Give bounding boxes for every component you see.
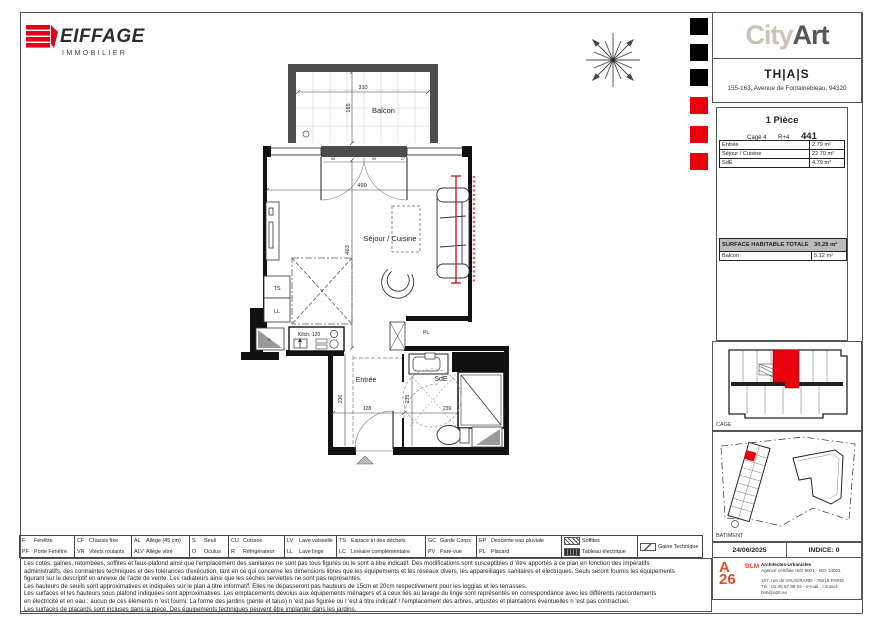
legend-table: FFenêtre PFPorte Fenêtre CFChassis fixe … — [20, 535, 712, 558]
dim-sejour-depth: 463 — [345, 245, 351, 255]
table-dashed — [392, 206, 420, 252]
dim-entree-depth: 236 — [338, 395, 344, 404]
tree-icon — [732, 521, 739, 528]
balcony-tiles — [296, 72, 430, 143]
disclaimer-text: Les cotes, gaines, retombées, soffites e… — [20, 558, 712, 612]
floor-plan: 310 165 Balcon 98 90 27 — [0, 0, 712, 535]
facade: 98 90 27 — [263, 146, 472, 162]
legend-col: CUCuisson RRéfrigérateur — [228, 535, 285, 558]
table-row: Entrée 2.79 m² — [719, 140, 845, 150]
waste-sorting-box: TS — [264, 276, 290, 298]
table-row: Séjour / Cuisine 22.70 m² — [719, 149, 845, 159]
stair-hatch — [759, 364, 773, 377]
sofa — [437, 188, 469, 278]
kitchen-label: Kitch. 120 — [298, 332, 320, 338]
cage-keyplan: CAGE — [712, 341, 862, 431]
architect-box: A 26 BLM Architectes-Urbanistes Agence c… — [712, 557, 862, 600]
room-label-entree: Entrée — [356, 377, 377, 384]
balcony-walls — [288, 64, 438, 143]
blm-label: BLM — [745, 563, 761, 599]
a26-logo: A 26 — [719, 562, 745, 599]
unit-info-box: 1 Pièce Cage 4 R+4 441 Entrée 2.79 m² Sé… — [716, 107, 848, 341]
balcony-door-bay — [321, 146, 407, 157]
dim-balcon-depth: 165 — [346, 103, 352, 112]
legend-col: LVLave vaisselle LLLave linge — [284, 535, 337, 558]
duct-mass — [452, 352, 504, 372]
room-label-balcon: Balcon — [372, 106, 395, 115]
legend-col: SSeuil OOculus — [189, 535, 229, 558]
legend-col: EPDescente eau pluviale PLPlacard — [476, 535, 562, 558]
dim-sde-depth: 235 — [405, 395, 411, 404]
svg-text:S: S — [268, 337, 271, 342]
project-logo: CityArt — [712, 12, 862, 59]
window-left — [267, 148, 321, 155]
closet-nook: PL — [390, 322, 429, 350]
plan-indice: INDICE: 0 — [786, 542, 862, 558]
dim-balcon-width: 310 — [358, 85, 367, 91]
legend-col: ALAllège (45 cm) ALVAllège vitré — [131, 535, 190, 558]
dim-bay-1: 98 — [331, 157, 335, 161]
soffit-zone — [292, 258, 352, 324]
project-logo-art: Art — [793, 20, 829, 51]
legend-col: GCGarde Corps PVPare-vue — [425, 535, 477, 558]
site-plan-drawing — [715, 434, 860, 537]
room-label-sde: SdE — [434, 376, 448, 383]
building-right — [793, 450, 843, 504]
dim-bay-2: 90 — [372, 157, 376, 161]
architect-line4: Tél : 01 45 67 89 02 - e-mail : contact-… — [761, 584, 857, 596]
room-areas-table: Entrée 2.79 m² Séjour / Cuisine 22.70 m²… — [719, 141, 845, 168]
gaine-swatch-icon — [640, 543, 656, 551]
dim-entree-width: 128 — [363, 406, 372, 412]
balcony: 310 165 Balcon — [288, 64, 438, 145]
legend-col-swatches: Soffites Tableau électrique — [561, 535, 638, 558]
unit-type: 1 Pièce — [717, 115, 847, 126]
batiment-label: BATIMENT — [716, 533, 743, 539]
dim-sejour-width: 499 — [357, 183, 367, 189]
soffites-swatch-icon — [564, 537, 580, 545]
dim-bay-3: 27 — [401, 157, 405, 161]
tableau-swatch-icon — [564, 548, 580, 556]
armchair — [378, 268, 416, 302]
tv-unit — [266, 202, 279, 260]
project-logo-city: City — [745, 20, 792, 51]
toilet — [437, 426, 469, 445]
cage-plan-drawing — [715, 344, 860, 426]
closet-label: PL — [423, 330, 429, 336]
building-left — [728, 442, 770, 521]
room-label-sejour: Séjour / Cuisine — [364, 234, 417, 243]
window-right — [407, 148, 465, 155]
residence-box: TH|A|S 155-163, Avenue de Fontainebleau,… — [712, 58, 862, 103]
drain-icon — [303, 131, 309, 137]
threshold-wedge-left: S — [256, 328, 284, 350]
svg-text:TS: TS — [273, 286, 280, 292]
dim-sde-width: 239 — [443, 406, 452, 412]
entrance-marker-icon — [357, 456, 373, 464]
table-row: SdE 4.79 m² — [719, 158, 845, 168]
balcony-area-row: Balcon 5.12 m² — [719, 251, 847, 261]
balcony-door — [321, 157, 407, 200]
legend-col: CFChassis fixe VRVolets roulants — [74, 535, 132, 558]
legend-col-gaine: Gaine Technique — [637, 535, 703, 558]
balcony-dim-lines — [296, 70, 430, 145]
shower — [458, 372, 504, 428]
titleblock-row: 24/06/2025 INDICE: 0 — [712, 542, 862, 558]
entrance-door-arc — [355, 411, 393, 449]
sde: SdE 235 239 — [403, 352, 504, 447]
kitchen: Kitch. 120 — [289, 327, 344, 351]
legend-col: FFenêtre PFPorte Fenêtre — [19, 535, 75, 558]
legend-col: TSEspace tri des déchets LCLinéaire comp… — [336, 535, 426, 558]
compass-icon — [586, 33, 640, 87]
cage-label: CAGE — [716, 422, 732, 428]
residence-address: 155-163, Avenue de Fontainebleau, 94320 — [713, 85, 861, 92]
plan-date: 24/06/2025 — [712, 542, 787, 558]
svg-text:LL: LL — [274, 309, 280, 315]
threshold-wedge-right — [472, 427, 502, 447]
batiment-keyplan: BATIMENT — [712, 431, 862, 542]
residence-name: TH|A|S — [713, 67, 861, 81]
washing-machine-box: LL — [264, 298, 290, 322]
total-surface-row: SURFACE HABITABLE TOTALE 30.28 m² — [719, 238, 847, 252]
